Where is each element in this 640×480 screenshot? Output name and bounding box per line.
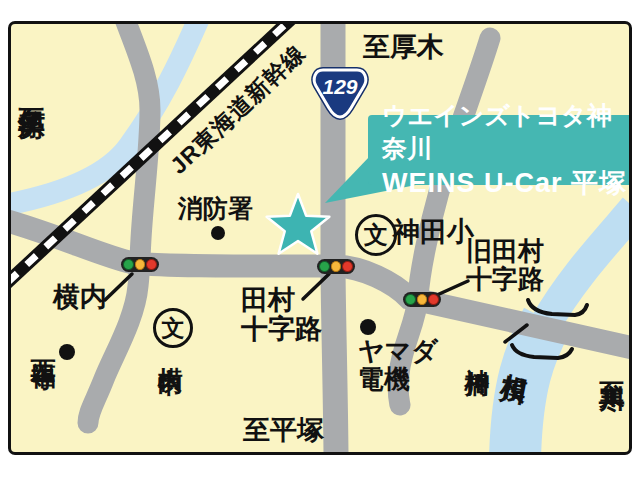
- yellow-light-icon: [331, 261, 342, 272]
- dealer-callout: ウエインズトヨタ神奈川 WEINS U-Car 平塚: [368, 115, 632, 185]
- route-number: 129: [311, 75, 369, 99]
- school-symbol-text: 文: [162, 313, 185, 344]
- map-frame: JR東海道新幹線 129 ウエインズトヨタ神奈川 WEINS U-Car 平塚 …: [8, 21, 632, 455]
- yokouchi-label: 横内: [53, 283, 107, 312]
- dealer-name-jp: ウエインズトヨタ神奈川: [382, 99, 632, 165]
- red-light-icon: [342, 261, 353, 272]
- kanda-elementary-label: 神田小: [393, 218, 474, 247]
- green-light-icon: [405, 294, 416, 305]
- direction-isehara: 至伊勢原: [17, 86, 46, 94]
- saifukuji-label: 西福寺: [30, 340, 57, 346]
- yamada-denki-dot: [360, 319, 376, 335]
- dealer-name-en: WEINS U-Car 平塚: [382, 165, 632, 201]
- green-light-icon: [319, 261, 330, 272]
- route-129-shield: 129: [311, 66, 369, 122]
- red-light-icon: [146, 259, 157, 270]
- green-light-icon: [123, 259, 134, 270]
- school-icon-yokouchi: 文: [153, 308, 193, 348]
- traffic-light-yokouchi: [121, 257, 159, 272]
- tamura-line1: 田村: [241, 286, 322, 315]
- red-light-icon: [428, 294, 439, 305]
- saifukuji-dot: [59, 344, 75, 360]
- kyu-tamura-line1: 旧田村: [466, 238, 544, 266]
- location-star-icon: [267, 194, 330, 254]
- fire-station-dot: [211, 226, 225, 240]
- road-west-curvy: [88, 24, 150, 423]
- direction-samukawa: 至寒川: [598, 361, 626, 367]
- river-gap-mark: [615, 264, 629, 286]
- yellow-light-icon: [135, 259, 146, 270]
- kyu-tamura-pointer: [437, 281, 468, 295]
- tamura-crossroads-label: 田村 十字路: [241, 286, 322, 343]
- traffic-light-kyu-tamura: [403, 292, 441, 307]
- tamura-line2: 十字路: [241, 315, 322, 344]
- yellow-light-icon: [417, 294, 428, 305]
- yamada-denki-label: ヤマダ 電機: [358, 338, 438, 393]
- direction-atsugi: 至厚木: [363, 33, 444, 62]
- yokouchi-junior-high-label: 横内中: [157, 346, 184, 352]
- kamikawa-bridge-label: 神川橋: [464, 348, 491, 354]
- school-icon-kanda: 文: [355, 214, 397, 256]
- kyu-tamura-line2: 十字路: [466, 266, 544, 294]
- direction-hiratsuka: 至平塚: [243, 416, 324, 445]
- yamada-line2: 電機: [358, 366, 438, 394]
- traffic-light-tamura: [317, 259, 355, 274]
- yamada-line1: ヤマダ: [358, 338, 438, 366]
- fire-station-label: 消防署: [178, 195, 253, 222]
- school-symbol-text: 文: [364, 219, 388, 251]
- map-screenshot: JR東海道新幹線 129 ウエインズトヨタ神奈川 WEINS U-Car 平塚 …: [0, 0, 640, 480]
- kyu-tamura-crossroads-label: 旧田村 十字路: [466, 238, 544, 293]
